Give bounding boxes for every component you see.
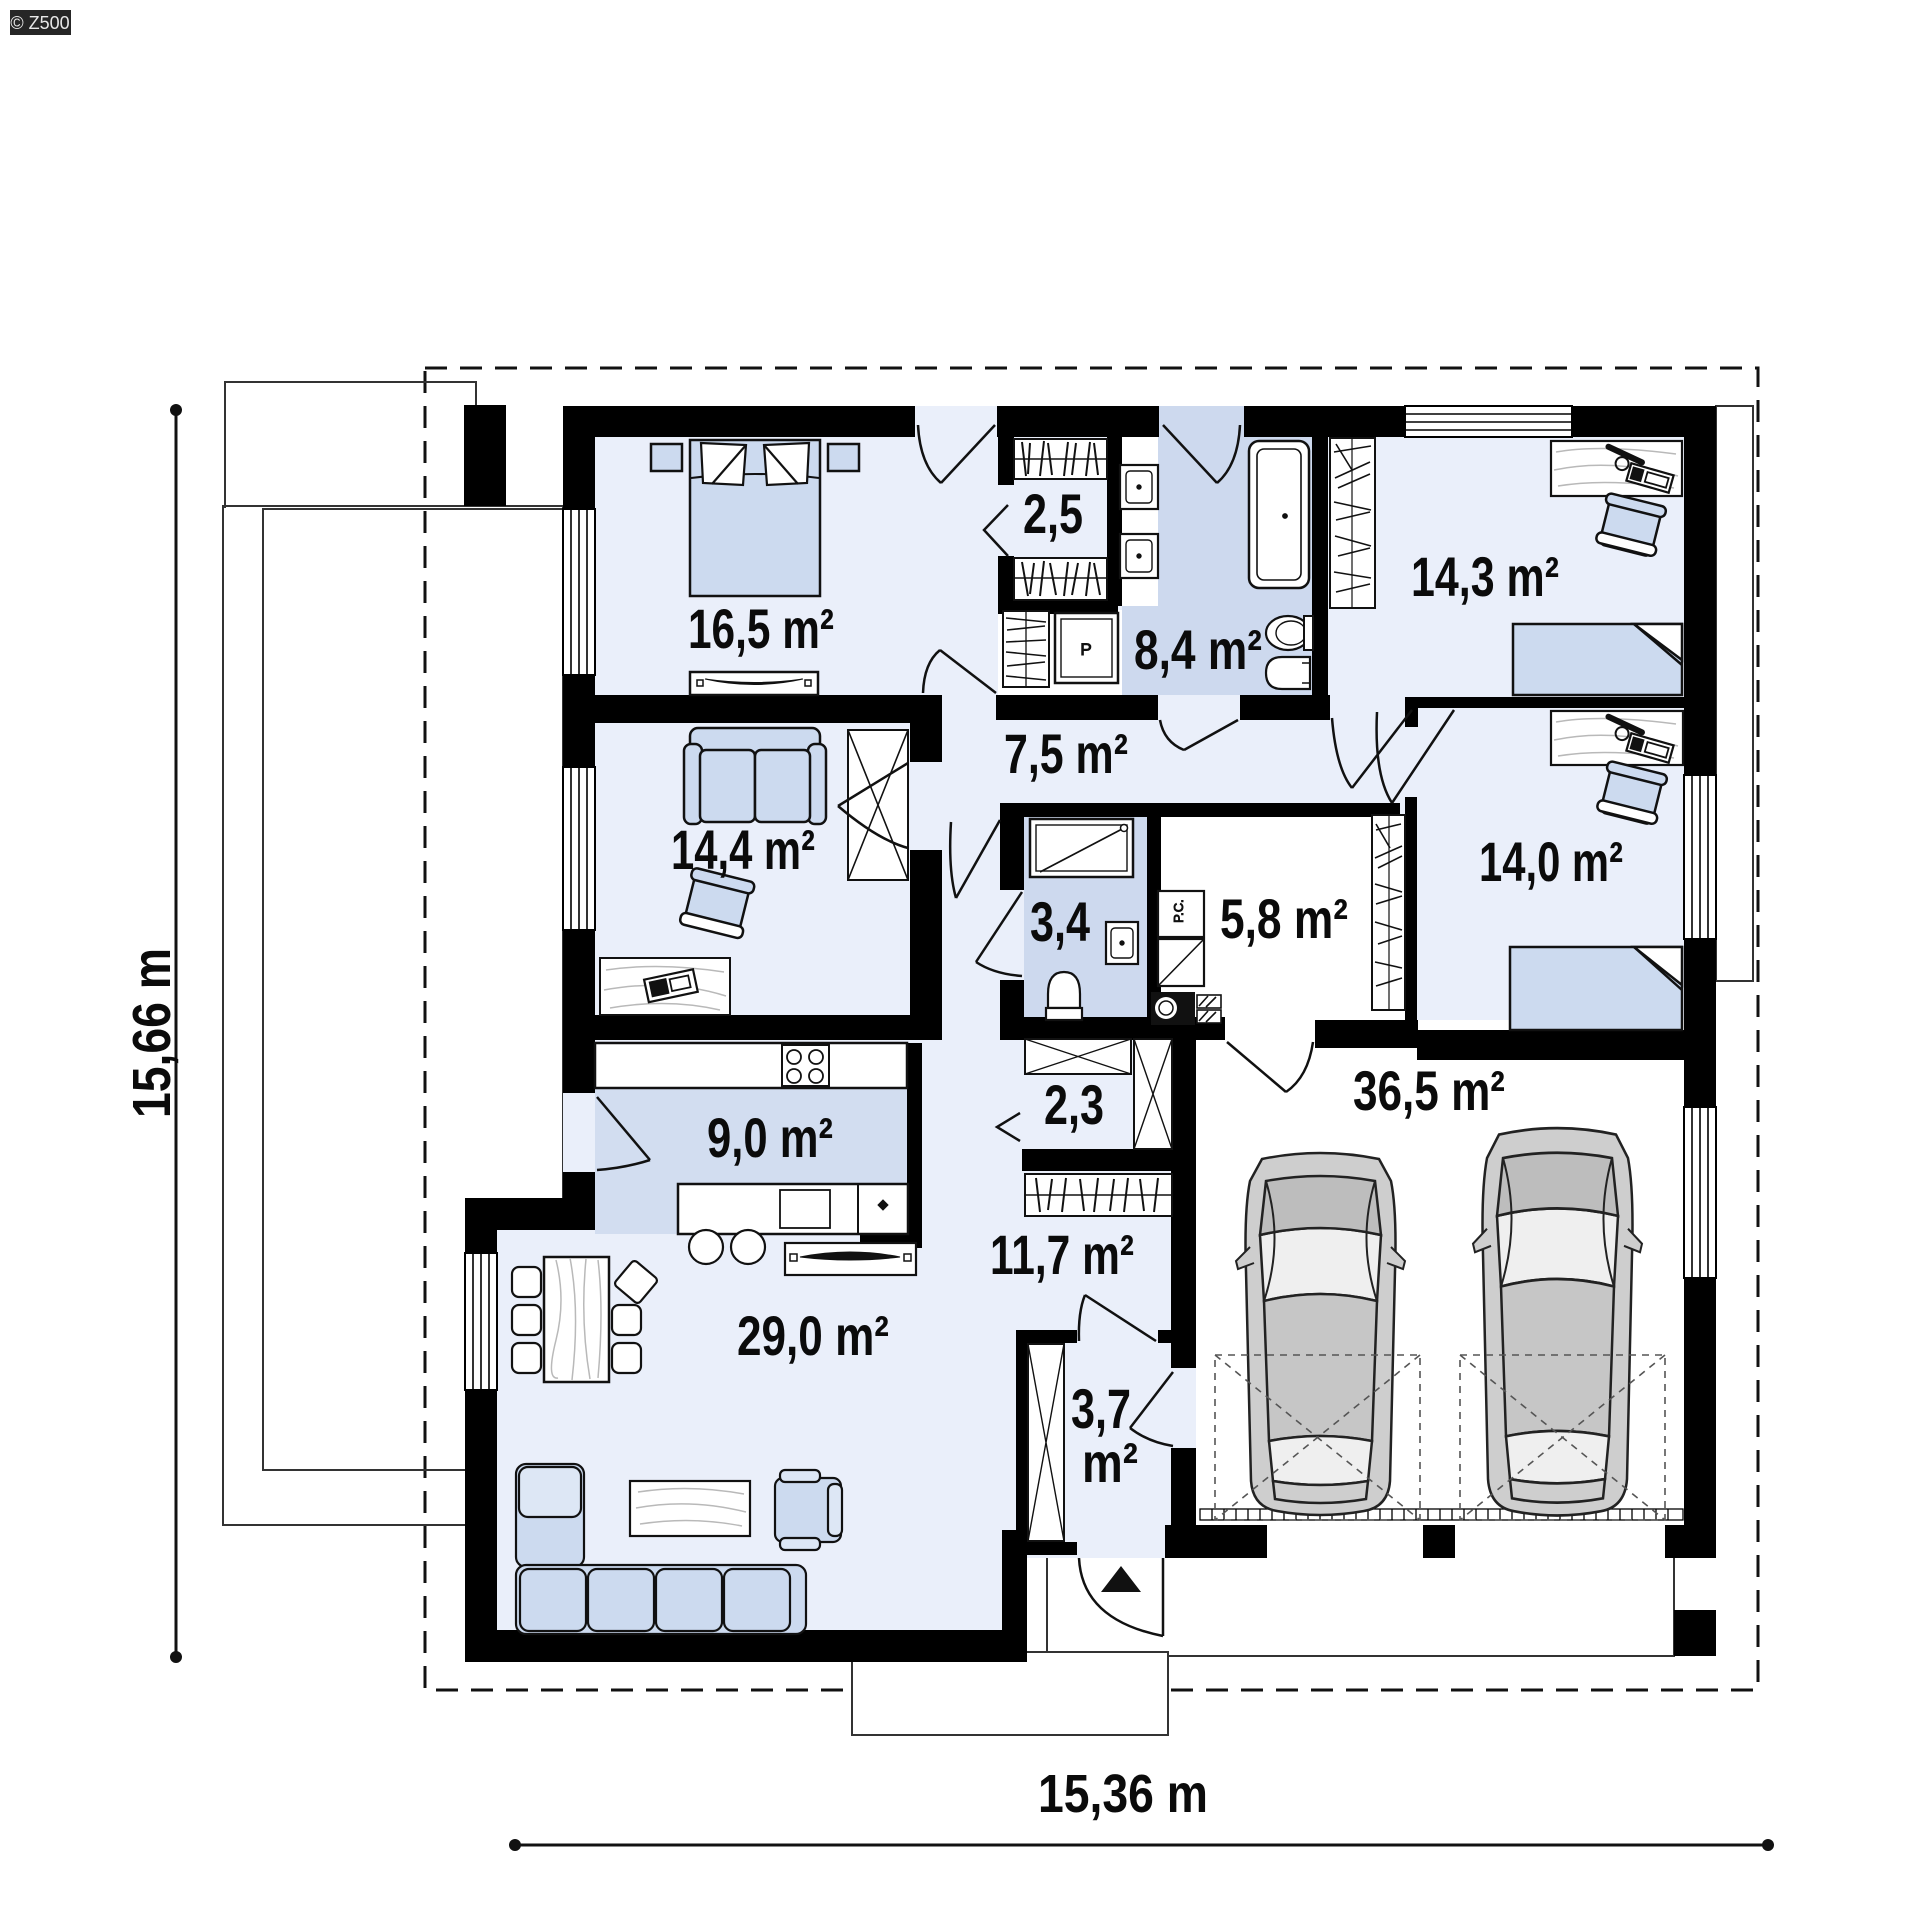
- svg-text:11,7 m²: 11,7 m²: [990, 1223, 1134, 1286]
- svg-text:2,5: 2,5: [1023, 482, 1083, 545]
- svg-text:P.C.: P.C.: [1171, 899, 1186, 923]
- svg-text:© Z500: © Z500: [10, 13, 69, 33]
- svg-text:15,66 m: 15,66 m: [122, 948, 182, 1118]
- svg-text:14,3 m²: 14,3 m²: [1411, 545, 1559, 608]
- svg-text:3,4: 3,4: [1030, 890, 1090, 953]
- svg-text:16,5 m²: 16,5 m²: [688, 597, 834, 660]
- svg-text:7,5 m²: 7,5 m²: [1004, 722, 1128, 785]
- svg-text:29,0 m²: 29,0 m²: [737, 1304, 889, 1367]
- svg-text:m²: m²: [1082, 1431, 1138, 1494]
- svg-text:2,3: 2,3: [1044, 1073, 1104, 1136]
- svg-text:14,0 m²: 14,0 m²: [1479, 830, 1623, 893]
- svg-text:8,4 m²: 8,4 m²: [1134, 618, 1262, 681]
- svg-text:14,4 m²: 14,4 m²: [671, 818, 815, 881]
- svg-text:15,36 m: 15,36 m: [1038, 1764, 1208, 1824]
- svg-text:5,8 m²: 5,8 m²: [1220, 887, 1348, 950]
- svg-text:9,0 m²: 9,0 m²: [707, 1106, 833, 1169]
- svg-text:36,5 m²: 36,5 m²: [1353, 1059, 1505, 1122]
- svg-text:P: P: [1080, 640, 1091, 659]
